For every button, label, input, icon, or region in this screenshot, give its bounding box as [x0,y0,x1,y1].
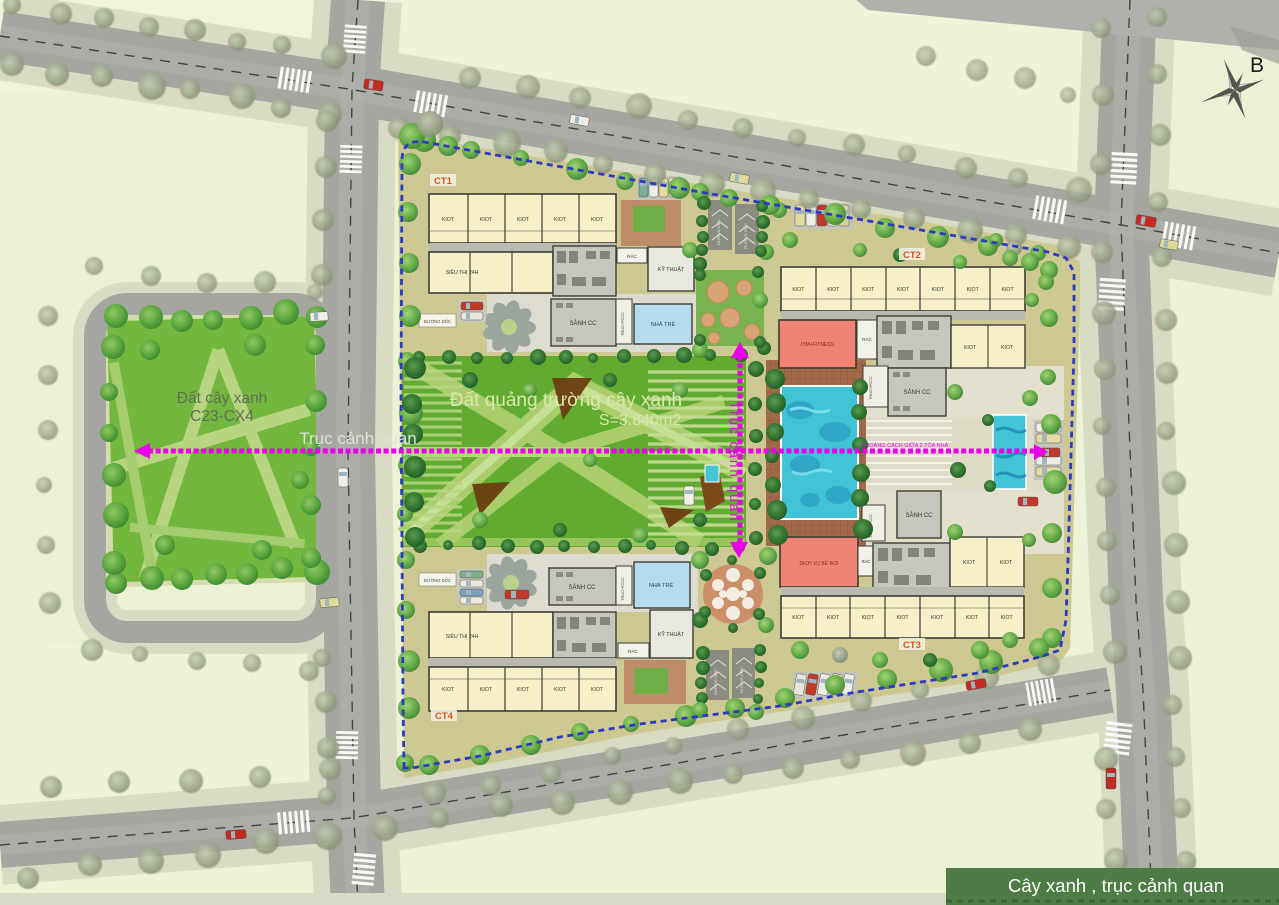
svg-text:NHÀ TRẺ: NHÀ TRẺ [649,582,674,589]
svg-text:NHÀ TRẺ: NHÀ TRẺ [651,321,676,328]
svg-text:KIOT: KIOT [442,687,455,693]
svg-text:KIOT: KIOT [517,217,530,223]
svg-text:Trục cảnh quan: Trục cảnh quan [727,401,742,522]
svg-text:C23-CX4: C23-CX4 [190,408,254,425]
svg-text:KHOẢNG CÁCH GIỮA 2 TÒA NHÀ: KHOẢNG CÁCH GIỮA 2 TÒA NHÀ [862,442,949,449]
svg-text:KIOT: KIOT [591,217,604,223]
svg-text:KIOT: KIOT [1001,345,1014,351]
svg-text:ĐƯỜNG DỐC: ĐƯỜNG DỐC [713,669,718,695]
svg-text:KIOT: KIOT [1000,560,1013,566]
svg-text:B: B [1250,54,1264,77]
svg-text:KIOT: KIOT [1002,287,1015,293]
svg-text:SẢNH CC: SẢNH CC [903,389,931,396]
svg-text:JYM+FITNESS: JYM+FITNESS [800,342,835,348]
svg-text:KIOT: KIOT [442,217,455,223]
svg-text:KIOT: KIOT [554,687,567,693]
svg-text:KIOT: KIOT [964,345,977,351]
svg-text:KIOT: KIOT [517,687,530,693]
svg-text:KIOT: KIOT [792,287,805,293]
svg-text:KIOT: KIOT [862,615,875,621]
svg-text:RÁC: RÁC [862,336,872,342]
svg-text:ĐƯỜNG DỐC: ĐƯỜNG DỐC [424,319,451,324]
svg-text:KIOT: KIOT [792,615,805,621]
svg-text:TRỤC+PCCC: TRỤC+PCCC [869,376,873,400]
svg-text:TRỤC+PCCC: TRỤC+PCCC [621,312,625,336]
svg-text:KIOT: KIOT [1001,615,1014,621]
svg-text:KIOT: KIOT [931,615,944,621]
svg-text:Đất quảng trường cây xanh: Đất quảng trường cây xanh [450,390,682,411]
svg-text:DỊCH VỤ BỂ BƠI: DỊCH VỤ BỂ BƠI [799,560,838,567]
svg-text:KIOT: KIOT [967,287,980,293]
svg-text:CT3: CT3 [903,640,921,651]
svg-text:KIOT: KIOT [827,615,840,621]
svg-text:KIOT: KIOT [480,687,493,693]
svg-text:SẢNH CC: SẢNH CC [569,320,597,327]
svg-text:KIOT: KIOT [896,615,909,621]
svg-text:TRỤC+PCCC: TRỤC+PCCC [621,577,625,601]
svg-text:SẢNH CC: SẢNH CC [905,512,933,519]
svg-text:S=3.840m2: S=3.840m2 [599,412,681,429]
svg-text:KIOT: KIOT [862,287,875,293]
svg-text:SẢNH CC: SẢNH CC [568,584,596,591]
svg-text:CT2: CT2 [903,250,921,261]
svg-text:KIOT: KIOT [827,287,840,293]
svg-text:Trục cảnh quan: Trục cảnh quan [299,429,417,448]
svg-text:KIOT: KIOT [591,687,604,693]
svg-text:RÁC: RÁC [627,253,637,259]
svg-text:ĐƯỜNG DỐC: ĐƯỜNG DỐC [716,219,721,245]
svg-text:ĐƯỜNG DỐC: ĐƯỜNG DỐC [739,667,744,693]
svg-text:Cây xanh , trục cảnh quan: Cây xanh , trục cảnh quan [1008,875,1224,896]
svg-text:RÁC: RÁC [628,648,638,654]
svg-text:SIÊU THỊ 24H: SIÊU THỊ 24H [446,268,479,276]
svg-text:KIOT: KIOT [932,287,945,293]
svg-text:ĐƯỜNG DỐC: ĐƯỜNG DỐC [743,223,748,249]
svg-text:KỸ THUẬT: KỸ THUẬT [658,266,685,273]
svg-text:KIOT: KIOT [966,615,979,621]
svg-text:TRỤC+PCCC: TRỤC+PCCC [869,514,873,538]
svg-text:ĐƯỜNG DỐC: ĐƯỜNG DỐC [424,578,451,583]
svg-text:KIOT: KIOT [480,217,493,223]
svg-text:KỸ THUẬT: KỸ THUẬT [658,631,685,638]
svg-text:RÁC: RÁC [862,559,871,564]
svg-text:KIOT: KIOT [963,560,976,566]
svg-text:SIÊU THỊ 24H: SIÊU THỊ 24H [446,632,479,640]
svg-text:KIOT: KIOT [554,217,567,223]
svg-text:KIOT: KIOT [897,287,910,293]
svg-text:CT1: CT1 [434,176,453,187]
svg-text:CT4: CT4 [435,711,454,722]
svg-text:Đất cây xanh: Đất cây xanh [177,390,267,407]
